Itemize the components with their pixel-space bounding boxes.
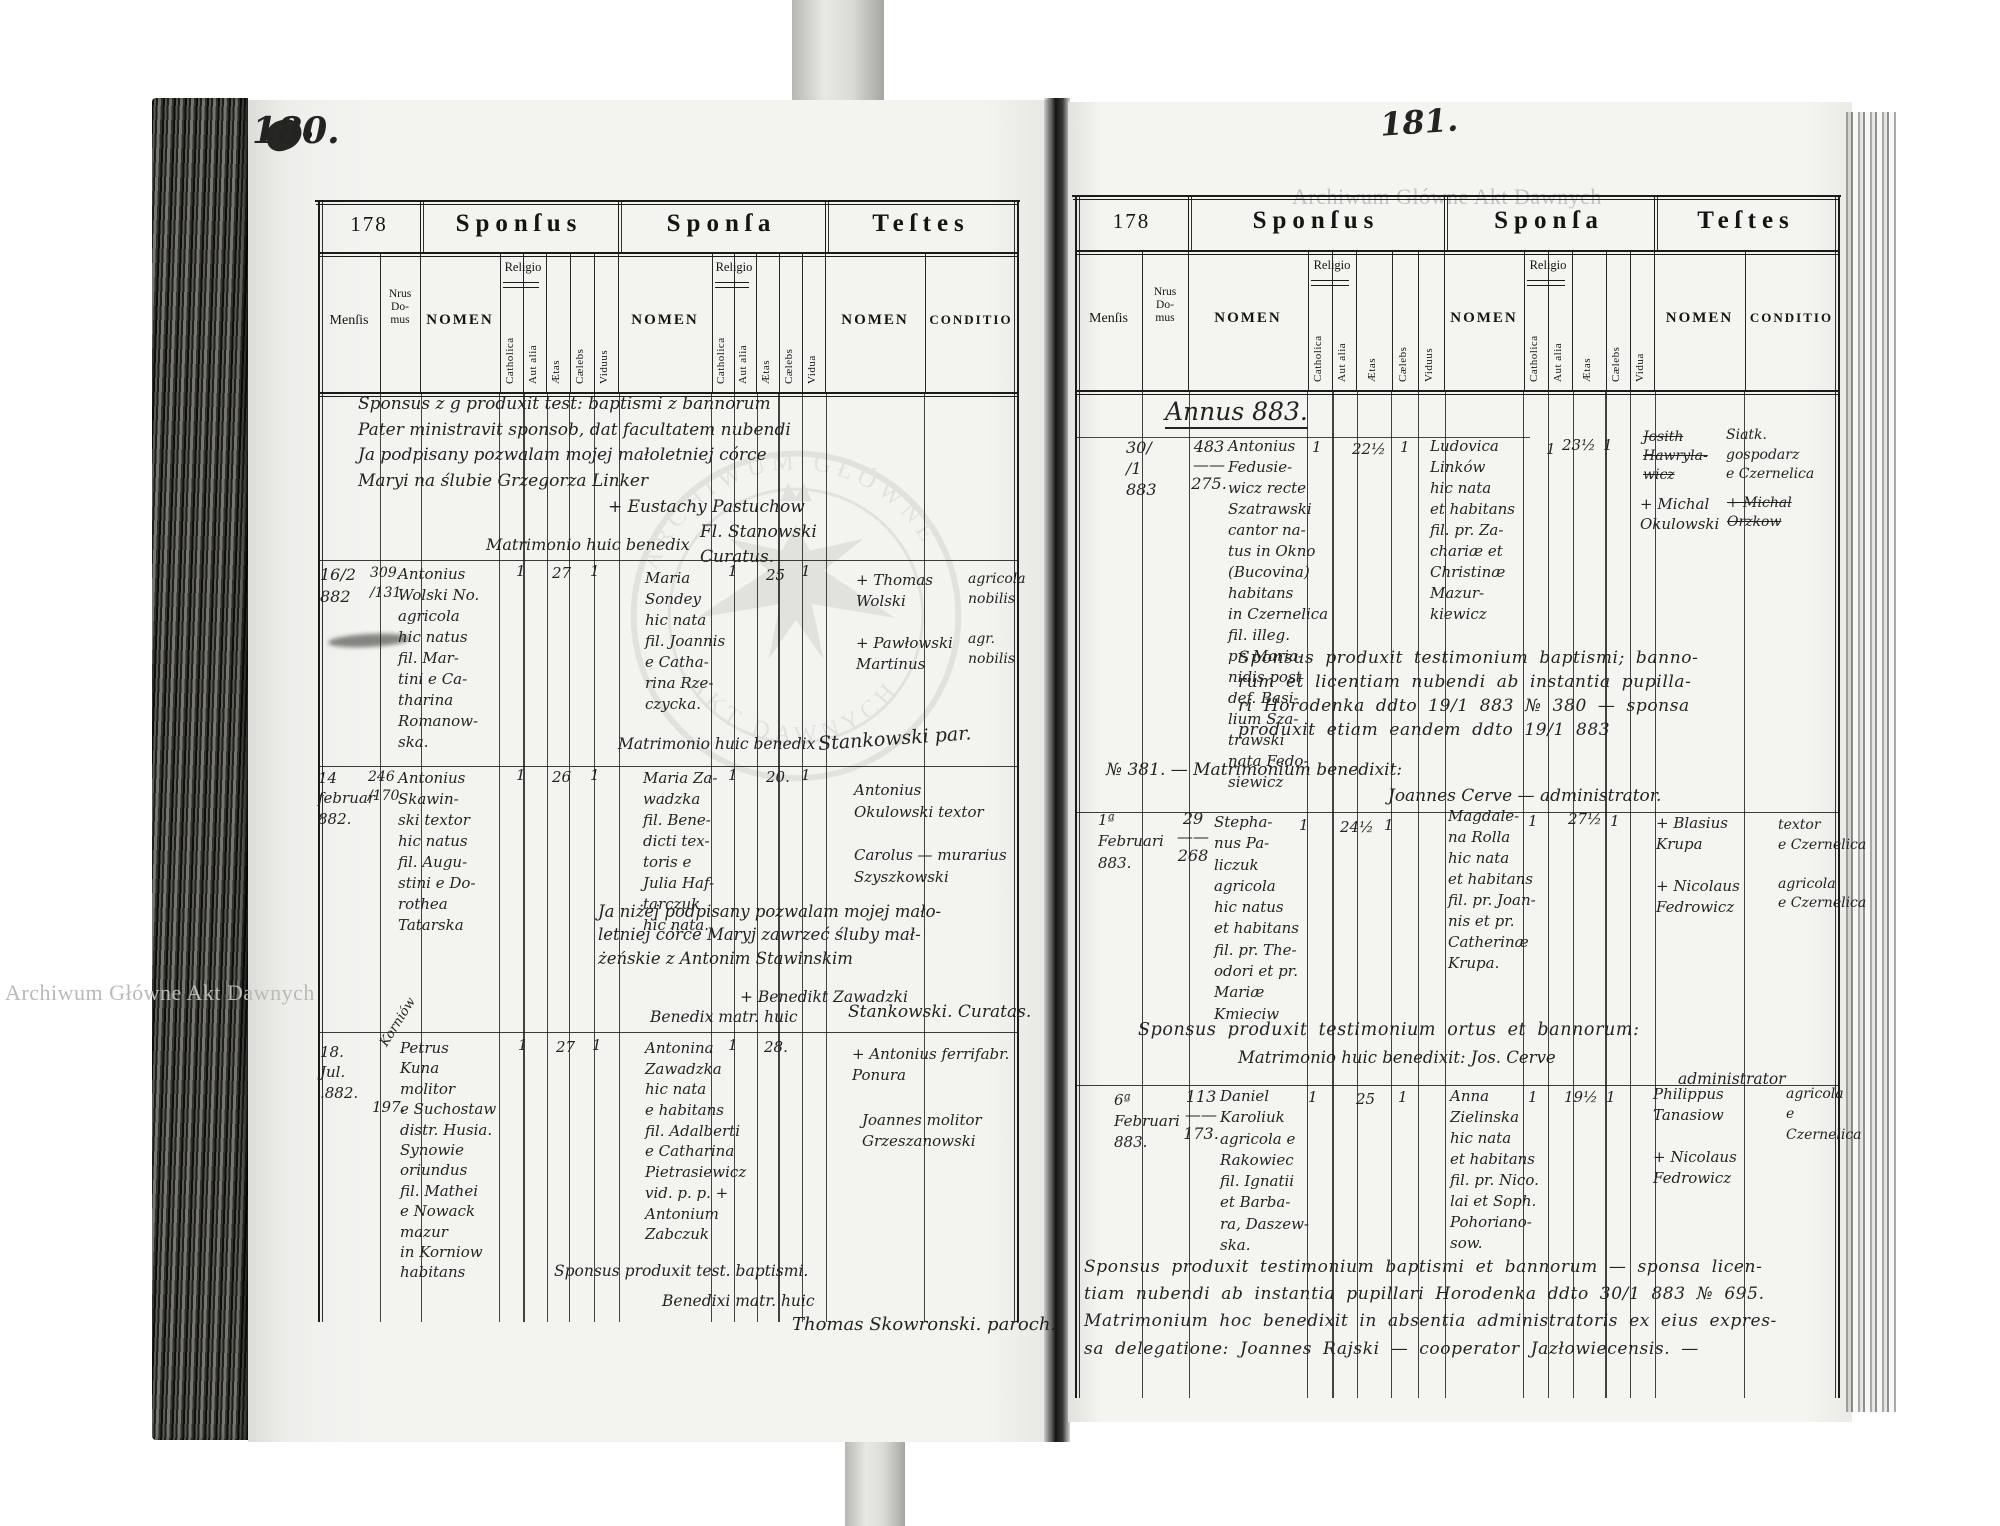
page_right-entries-0-conditio_struck: + Michal Orzkow — [1727, 494, 1829, 532]
rule-line — [1835, 195, 1836, 1398]
right-col-aut_alia-label: Aut alia — [1552, 288, 1569, 382]
right-col-viduus-label: Viduus — [1423, 264, 1440, 382]
page_right-entries-0-note2: № 381. — Matrimonium benedixit: — [1106, 760, 1536, 780]
rule-line — [1189, 390, 1190, 1398]
rule-line — [1075, 254, 1838, 255]
page_left-entries-2-sponsus_caelebs: 1 — [592, 1036, 612, 1054]
left-religio-sponsus: Religio — [494, 260, 552, 274]
page_right-entries-1-testes_nomen: + Blasius Krupa + Nicolaus Fedrowicz — [1656, 813, 1758, 918]
left-col-aetas-label: Ætas — [760, 266, 777, 384]
page_left-entries-2-benedictio: Benedixi matr. huic — [662, 1292, 892, 1311]
left-header-sponsa: Sponſa — [618, 210, 825, 239]
page_left-entries-0-sponsus_aetas: 27 — [552, 564, 580, 582]
rule-line — [318, 560, 1017, 561]
rule-line — [316, 204, 1019, 205]
page_right-entries-1-sponsus_catholica: 1 — [1299, 816, 1319, 834]
rule-line — [380, 392, 381, 1322]
right-col-aut_alia-label: Aut alia — [1336, 288, 1353, 382]
page_right-entries-2-conditio: agricola e Czernelica — [1786, 1084, 1888, 1145]
rule-line — [1418, 250, 1419, 390]
right-col-nomen-testes: NOMEN — [1654, 310, 1745, 327]
book-gutter — [1044, 98, 1070, 1442]
right-header-testes: Teſtes — [1654, 207, 1838, 236]
page_left-entries-1-benedictio: Benedix matr. huic — [650, 1008, 860, 1027]
page_right-entries-0-sponsa_aetas: 23½ — [1562, 436, 1598, 454]
page_right-entries-1-sponsa_aetas: 27½ — [1568, 810, 1604, 828]
page_right-entries-1-mensis: 1ª Februari 883. — [1098, 810, 1172, 874]
page_left-entries-0-sponsus_caelebs: 1 — [590, 562, 610, 580]
rule-line — [1014, 200, 1015, 1322]
right-col-nrus: Nrus Do- mus — [1142, 286, 1188, 326]
left-col-nomen-sponsus: NOMEN — [420, 312, 500, 329]
right-header-sponsus: Sponſus — [1188, 207, 1444, 236]
page_left-entries-0-conditio: agricola nobilis agr. nobilis — [968, 570, 1064, 669]
left-col-caelebs-label: Cælebs — [574, 266, 591, 384]
page_left-entries-1-sponsus_catholica: 1 — [516, 766, 536, 784]
page_right-entries-1-sponsus_aetas: 24½ — [1340, 818, 1376, 836]
right-form-number: 178 — [1075, 209, 1188, 233]
page_left-entries-0-sponsa_aetas: 25 — [766, 566, 794, 584]
left-col-viduus-label: Viduus — [598, 266, 615, 384]
scanned-register-spread: ARCHIWUM GŁÓWNE AKT DAWNYCH Archiwum Głó… — [0, 0, 2000, 1526]
page_left-folio: 180. — [252, 112, 362, 152]
rule-line — [1075, 250, 1838, 252]
page_right-entries-0-mensis: 30/ /1 883 — [1126, 438, 1180, 500]
page_left-entries-0-sponsa_caelebs: 1 — [801, 562, 821, 580]
page_left-entries-1-signature: Stankowski. Curatas. — [848, 1002, 1058, 1022]
right-religio-sponsus: Religio — [1302, 258, 1362, 272]
left-header-testes: Teſtes — [825, 210, 1017, 239]
rule-line — [1079, 195, 1080, 1398]
page_left-top_note_sign: Fl. Stanowski Curatus. — [700, 520, 870, 569]
page_left-entries-0-testes_nomen: + Thomas Wolski + Pawłowski Martinus — [856, 570, 974, 675]
page_right-entries-1-sponsus_nomen: Stepha- nus Pa- liczuk agricola hic natu… — [1214, 812, 1320, 1025]
left-col-aut_alia-label: Aut alia — [737, 290, 754, 384]
rule-line — [1418, 390, 1419, 1398]
right-col-conditio: CONDITIO — [1745, 311, 1838, 326]
page_left-entries-1-sponsus_nomen: Antonius Skawin- ski textor hic natus fi… — [398, 768, 516, 936]
right-page-edge — [1846, 112, 1896, 1412]
book-strap-top — [792, 0, 884, 102]
page_left-top_note: Sponsus z g produxit test: baptismi z ba… — [358, 392, 848, 494]
page_left-entries-2-testes_nomen2: Joannes molitor Grzeszanowski — [862, 1110, 1042, 1151]
page_right-entries-0-sponsus_catholica: 1 — [1312, 438, 1332, 456]
right-col-nomen-sponsus: NOMEN — [1188, 310, 1308, 327]
right-col-mensis: Menſis — [1075, 311, 1142, 327]
rule-line — [569, 392, 570, 1322]
rule-line — [1392, 250, 1393, 390]
left-col-vidua-label: Vidua — [806, 266, 823, 384]
page_left-entries-2-sponsa_aetas: 28. — [764, 1038, 794, 1056]
page_left-entries-2-sponsus_nomen: Petrus Kuna molitor e Suchostaw distr. H… — [400, 1038, 520, 1283]
page_left-entries-2-sponsa_nomen: Antonina Zawadzka hic nata e habitans fi… — [645, 1038, 763, 1245]
page_right-entries-2-testes_nomen: Philippus Tanasiow + Nicolaus Fedrowicz — [1653, 1084, 1755, 1189]
page_left-entries-2-sponsus_catholica: 1 — [518, 1036, 538, 1054]
page_right-entries-0-nrus: 483 —— 275. — [1186, 438, 1232, 493]
left-col-aetas-label: Ætas — [550, 266, 567, 384]
left-religio-underline — [715, 282, 749, 288]
page_right-entries-1-sponsa_catholica: 1 — [1528, 812, 1548, 830]
left-col-nrus: Nrus Do- mus — [380, 288, 420, 328]
right-religio-sponsa: Religio — [1518, 258, 1578, 272]
page-stack-edge — [152, 98, 248, 1440]
page_left-entries-1-sponsus_caelebs: 1 — [590, 766, 610, 784]
rule-line — [594, 252, 595, 392]
page_right-entries-1-nrus: 29 —— 268 — [1172, 810, 1214, 865]
rule-line — [1075, 195, 1077, 1398]
page_right-entries-2-sponsa_aetas: 19½ — [1564, 1088, 1598, 1106]
left-col-aut_alia-label: Aut alia — [527, 290, 544, 384]
page_right-entries-2-note: Sponsus produxit testimonium baptismi et… — [1084, 1254, 1850, 1363]
left-col-nomen-sponsa: NOMEN — [618, 312, 712, 329]
page_left-entries-0-sponsa_catholica: 1 — [728, 562, 748, 580]
right-col-aetas-label: Ætas — [1581, 264, 1598, 382]
page_right-entries-0-note: Sponsus produxit testimonium baptismi; b… — [1238, 646, 1838, 743]
rule-line — [547, 392, 548, 1322]
page_right-entries-2-sponsus_catholica: 1 — [1308, 1088, 1328, 1106]
left-religio-underline — [503, 282, 539, 288]
page_left-entries-1-sponsus_aetas: 26 — [552, 768, 580, 786]
page_right-entries-2-mensis: 6ª Februari 883. — [1114, 1090, 1188, 1153]
right-col-nomen-sponsa: NOMEN — [1444, 310, 1524, 327]
rule-line — [1606, 250, 1607, 390]
page_left-entries-1-sponsa_catholica: 1 — [728, 766, 748, 784]
rule-line — [594, 392, 595, 1322]
page_right-entries-0-sponsa_nomen: Ludovica Linków hic nata et habitans fil… — [1430, 436, 1540, 625]
right-col-caelebs-label: Cælebs — [1397, 264, 1414, 382]
page_left-entries-0-sponsus_catholica: 1 — [516, 562, 536, 580]
page_right-entries-0-conditio: Siatk. gospodarz e Czernelica — [1726, 426, 1838, 485]
left-header-sponsus: Sponſus — [420, 210, 618, 239]
rule-line — [318, 252, 1017, 254]
rule-line — [1573, 390, 1574, 1398]
rule-line — [1142, 390, 1143, 1398]
rule-line — [1391, 390, 1392, 1398]
rule-line — [318, 256, 1017, 257]
page_right-entries-1-sponsa_caelebs: 1 — [1610, 812, 1630, 830]
page_right-entries-2-sponsa_catholica: 1 — [1528, 1088, 1548, 1106]
page_right-entries-0-sponsa_caelebs: 1 — [1603, 436, 1623, 454]
page_right-entries-2-nrus: 113 —— 173. — [1178, 1088, 1224, 1143]
right-religio-underline — [1311, 280, 1349, 286]
page_right-entries-0-sponsus_aetas: 22½ — [1352, 440, 1388, 458]
page_right-entries-0-sponsus_caelebs: 1 — [1400, 438, 1420, 456]
page_left-entries-2-note_baptismi: Sponsus produxit test. baptismi. — [554, 1262, 864, 1281]
rule-line — [1357, 390, 1358, 1398]
rule-line — [523, 392, 525, 1322]
rule-line — [1630, 390, 1631, 1398]
page_left-top_note_benedix: Matrimonio huic benedix — [486, 534, 736, 556]
right-col-vidua-label: Vidua — [1634, 264, 1651, 382]
rule-line — [619, 392, 621, 1322]
page_left-entries-0-sponsus_nomen: Antonius Wolski No. agricola hic natus f… — [398, 564, 516, 753]
left-form-number: 178 — [318, 212, 420, 236]
page_right-entries-2-sponsus_aetas: 25 — [1356, 1090, 1384, 1108]
page_right-entries-2-sponsus_nomen: Daniel Karoliuk agricola e Rakowiec fil.… — [1220, 1086, 1322, 1256]
page_left-entries-2-signature: Thomas Skowronski. paroch. — [792, 1314, 1062, 1336]
page_left-entries-2-testes_nomen: + Antonius ferrifabr. Ponura — [852, 1044, 1032, 1085]
left-col-conditio: CONDITIO — [925, 313, 1017, 328]
right-col-catholica-label: Catholica — [1528, 288, 1545, 382]
rule-line — [779, 252, 780, 392]
rule-line — [1017, 200, 1019, 1322]
rule-line — [322, 200, 323, 1322]
page_right-entries-1-sponsus_caelebs: 1 — [1384, 816, 1404, 834]
page_left-entries-2-mensis: 18. Jul. .882. — [320, 1042, 378, 1103]
right-col-caelebs-label: Cælebs — [1610, 264, 1627, 382]
right-col-catholica-label: Catholica — [1312, 288, 1329, 382]
page_left-entries-1-sponsa_aetas: 20. — [766, 768, 794, 786]
left-col-catholica-label: Catholica — [504, 290, 521, 384]
rule-line — [802, 252, 803, 392]
page_left-entries-2-sponsa_catholica: 1 — [728, 1036, 748, 1054]
left-col-nomen-testes: NOMEN — [825, 312, 925, 329]
page_right-entries-2-sponsa_nomen: Anna Zielinska hic nata et habitans fil.… — [1450, 1086, 1556, 1254]
rule-line — [1605, 390, 1607, 1398]
right-col-aetas-label: Ætas — [1366, 264, 1383, 382]
page_right-entries-2-sponsa_caelebs: 1 — [1606, 1088, 1626, 1106]
rule-line — [570, 252, 571, 392]
right-header-sponsa: Sponſa — [1444, 207, 1654, 236]
watermark-text-bottom-left: Archiwum Główne Akt Dawnych — [5, 980, 315, 1006]
page_right-entries-1-note2: Matrimonio huic benedixit: Jos. Cerve — [1238, 1048, 1688, 1068]
rule-line — [318, 200, 320, 1322]
rule-line — [318, 1032, 1017, 1033]
page_right-entries-0-note3: Joannes Cerve — administrator. — [1388, 786, 1728, 806]
page_left-entries-1-consent_note: Ja niżej podpisany pozwalam mojej mało- … — [598, 900, 1028, 970]
page_right-entries-1-note: Sponsus produxit testimonium ortus et ba… — [1138, 1020, 1668, 1041]
page_left-top_note_witness: + Eustachy Pastuchow — [608, 496, 878, 520]
page_left-entries-2-sponsus_aetas: 27 — [556, 1038, 584, 1056]
page_right-annus: Annus 883. — [1165, 398, 1308, 429]
left-col-caelebs-label: Cælebs — [783, 266, 800, 384]
page_right-entries-0-testes_struck: Josith Hawryla- wicz — [1643, 428, 1735, 485]
left-col-catholica-label: Catholica — [715, 290, 732, 384]
page_right-entries-1-sponsa_nomen: Magdale- na Rolla hic nata et habitans f… — [1448, 806, 1556, 974]
page_left-entries-1-testes_nomen: Antonius Okulowski textor Carolus — mura… — [854, 780, 1029, 889]
left-religio-sponsa: Religio — [706, 260, 762, 274]
rule-line — [1838, 195, 1840, 1398]
page_right-entries-1-conditio: textor e Czernelica agricola e Czernelic… — [1778, 816, 1890, 914]
right-religio-underline — [1527, 280, 1565, 286]
page_left-entries-1-sponsa_caelebs: 1 — [801, 766, 821, 784]
rule-line — [1630, 250, 1631, 390]
page_left-entries-0-sponsa_nomen: Maria Sondey hic nata fil. Joannis e Cat… — [645, 568, 759, 715]
left-col-mensis: Menſis — [318, 313, 380, 329]
page_right-entries-2-sponsus_caelebs: 1 — [1398, 1088, 1418, 1106]
